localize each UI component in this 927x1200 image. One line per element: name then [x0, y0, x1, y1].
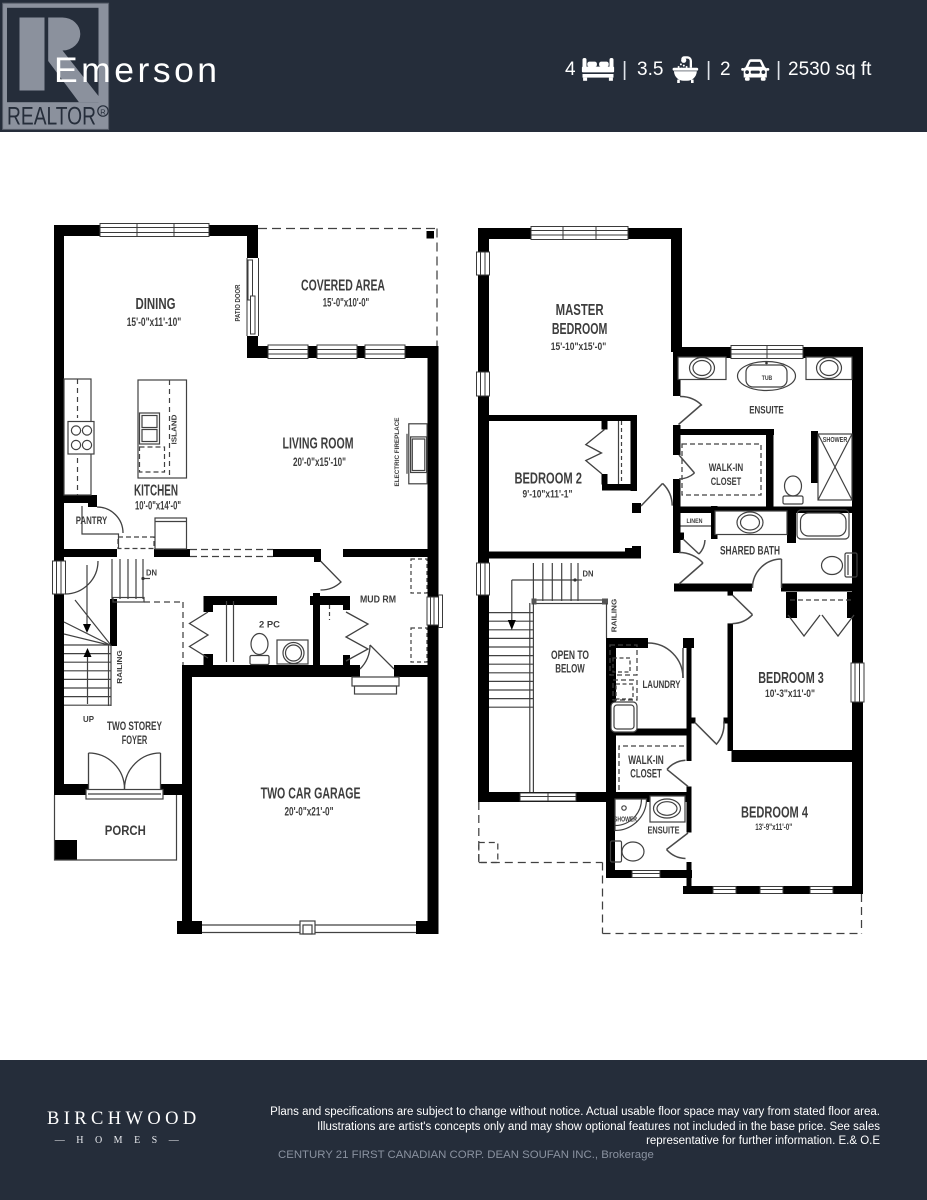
svg-text:COVERED AREA: COVERED AREA: [301, 278, 385, 295]
svg-text:MASTER: MASTER: [556, 302, 604, 319]
svg-text:UP: UP: [83, 714, 94, 724]
svg-text:DN: DN: [146, 568, 157, 578]
svg-text:LIVING ROOM: LIVING ROOM: [283, 436, 354, 453]
svg-text:15'-10"x15'-0": 15'-10"x15'-0": [551, 341, 607, 353]
svg-text:RAILING: RAILING: [610, 599, 619, 633]
svg-text:BEDROOM: BEDROOM: [552, 321, 608, 338]
svg-text:LAUNDRY: LAUNDRY: [643, 679, 681, 691]
svg-text:ENSUITE: ENSUITE: [749, 405, 784, 417]
svg-text:2 PC: 2 PC: [259, 620, 280, 631]
svg-text:ELECTRIC FIREPLACE: ELECTRIC FIREPLACE: [394, 417, 401, 487]
svg-text:DINING: DINING: [136, 296, 176, 313]
svg-text:13'-9"x11'-0": 13'-9"x11'-0": [755, 822, 792, 833]
svg-text:PATIO DOOR: PATIO DOOR: [233, 284, 242, 321]
svg-text:TWO STOREY: TWO STOREY: [107, 719, 162, 733]
svg-text:9'-10"x11'-1": 9'-10"x11'-1": [523, 489, 573, 501]
svg-text:20'-0"x15'-10": 20'-0"x15'-10": [293, 457, 346, 469]
svg-text:BEDROOM 4: BEDROOM 4: [741, 805, 808, 822]
svg-text:10'-0"x14'-0": 10'-0"x14'-0": [135, 501, 181, 513]
svg-text:BEDROOM 3: BEDROOM 3: [758, 670, 824, 687]
svg-text:WALK-IN: WALK-IN: [709, 462, 744, 474]
svg-text:SHOWER: SHOWER: [823, 437, 848, 444]
svg-text:TWO CAR GARAGE: TWO CAR GARAGE: [261, 786, 361, 803]
svg-text:DN: DN: [583, 569, 594, 579]
svg-text:PANTRY: PANTRY: [76, 515, 108, 527]
svg-text:BEDROOM 2: BEDROOM 2: [514, 471, 582, 488]
svg-text:FOYER: FOYER: [122, 733, 148, 747]
svg-text:20'-0"x21'-0": 20'-0"x21'-0": [285, 807, 334, 819]
svg-text:SHOWER: SHOWER: [614, 817, 637, 824]
svg-text:PORCH: PORCH: [105, 822, 146, 838]
svg-text:ENSUITE: ENSUITE: [648, 826, 680, 837]
svg-text:SHARED BATH: SHARED BATH: [720, 546, 780, 558]
svg-text:TUB: TUB: [762, 375, 773, 382]
svg-text:LINEN: LINEN: [687, 518, 703, 525]
svg-text:15'-0"x11'-10": 15'-0"x11'-10": [127, 317, 182, 329]
svg-text:KITCHEN: KITCHEN: [134, 483, 178, 500]
svg-text:10'-3"x11'-0": 10'-3"x11'-0": [765, 688, 815, 700]
svg-text:RAILING: RAILING: [115, 650, 124, 684]
svg-text:CLOSET: CLOSET: [711, 476, 742, 488]
svg-text:OPEN TO: OPEN TO: [551, 650, 589, 662]
svg-text:BELOW: BELOW: [555, 664, 585, 676]
svg-text:15'-0"x10'-0": 15'-0"x10'-0": [323, 298, 370, 310]
svg-text:ISLAND: ISLAND: [170, 414, 179, 445]
svg-text:WALK-IN: WALK-IN: [628, 755, 664, 767]
svg-text:MUD RM: MUD RM: [360, 595, 396, 606]
svg-text:CLOSET: CLOSET: [630, 769, 662, 781]
